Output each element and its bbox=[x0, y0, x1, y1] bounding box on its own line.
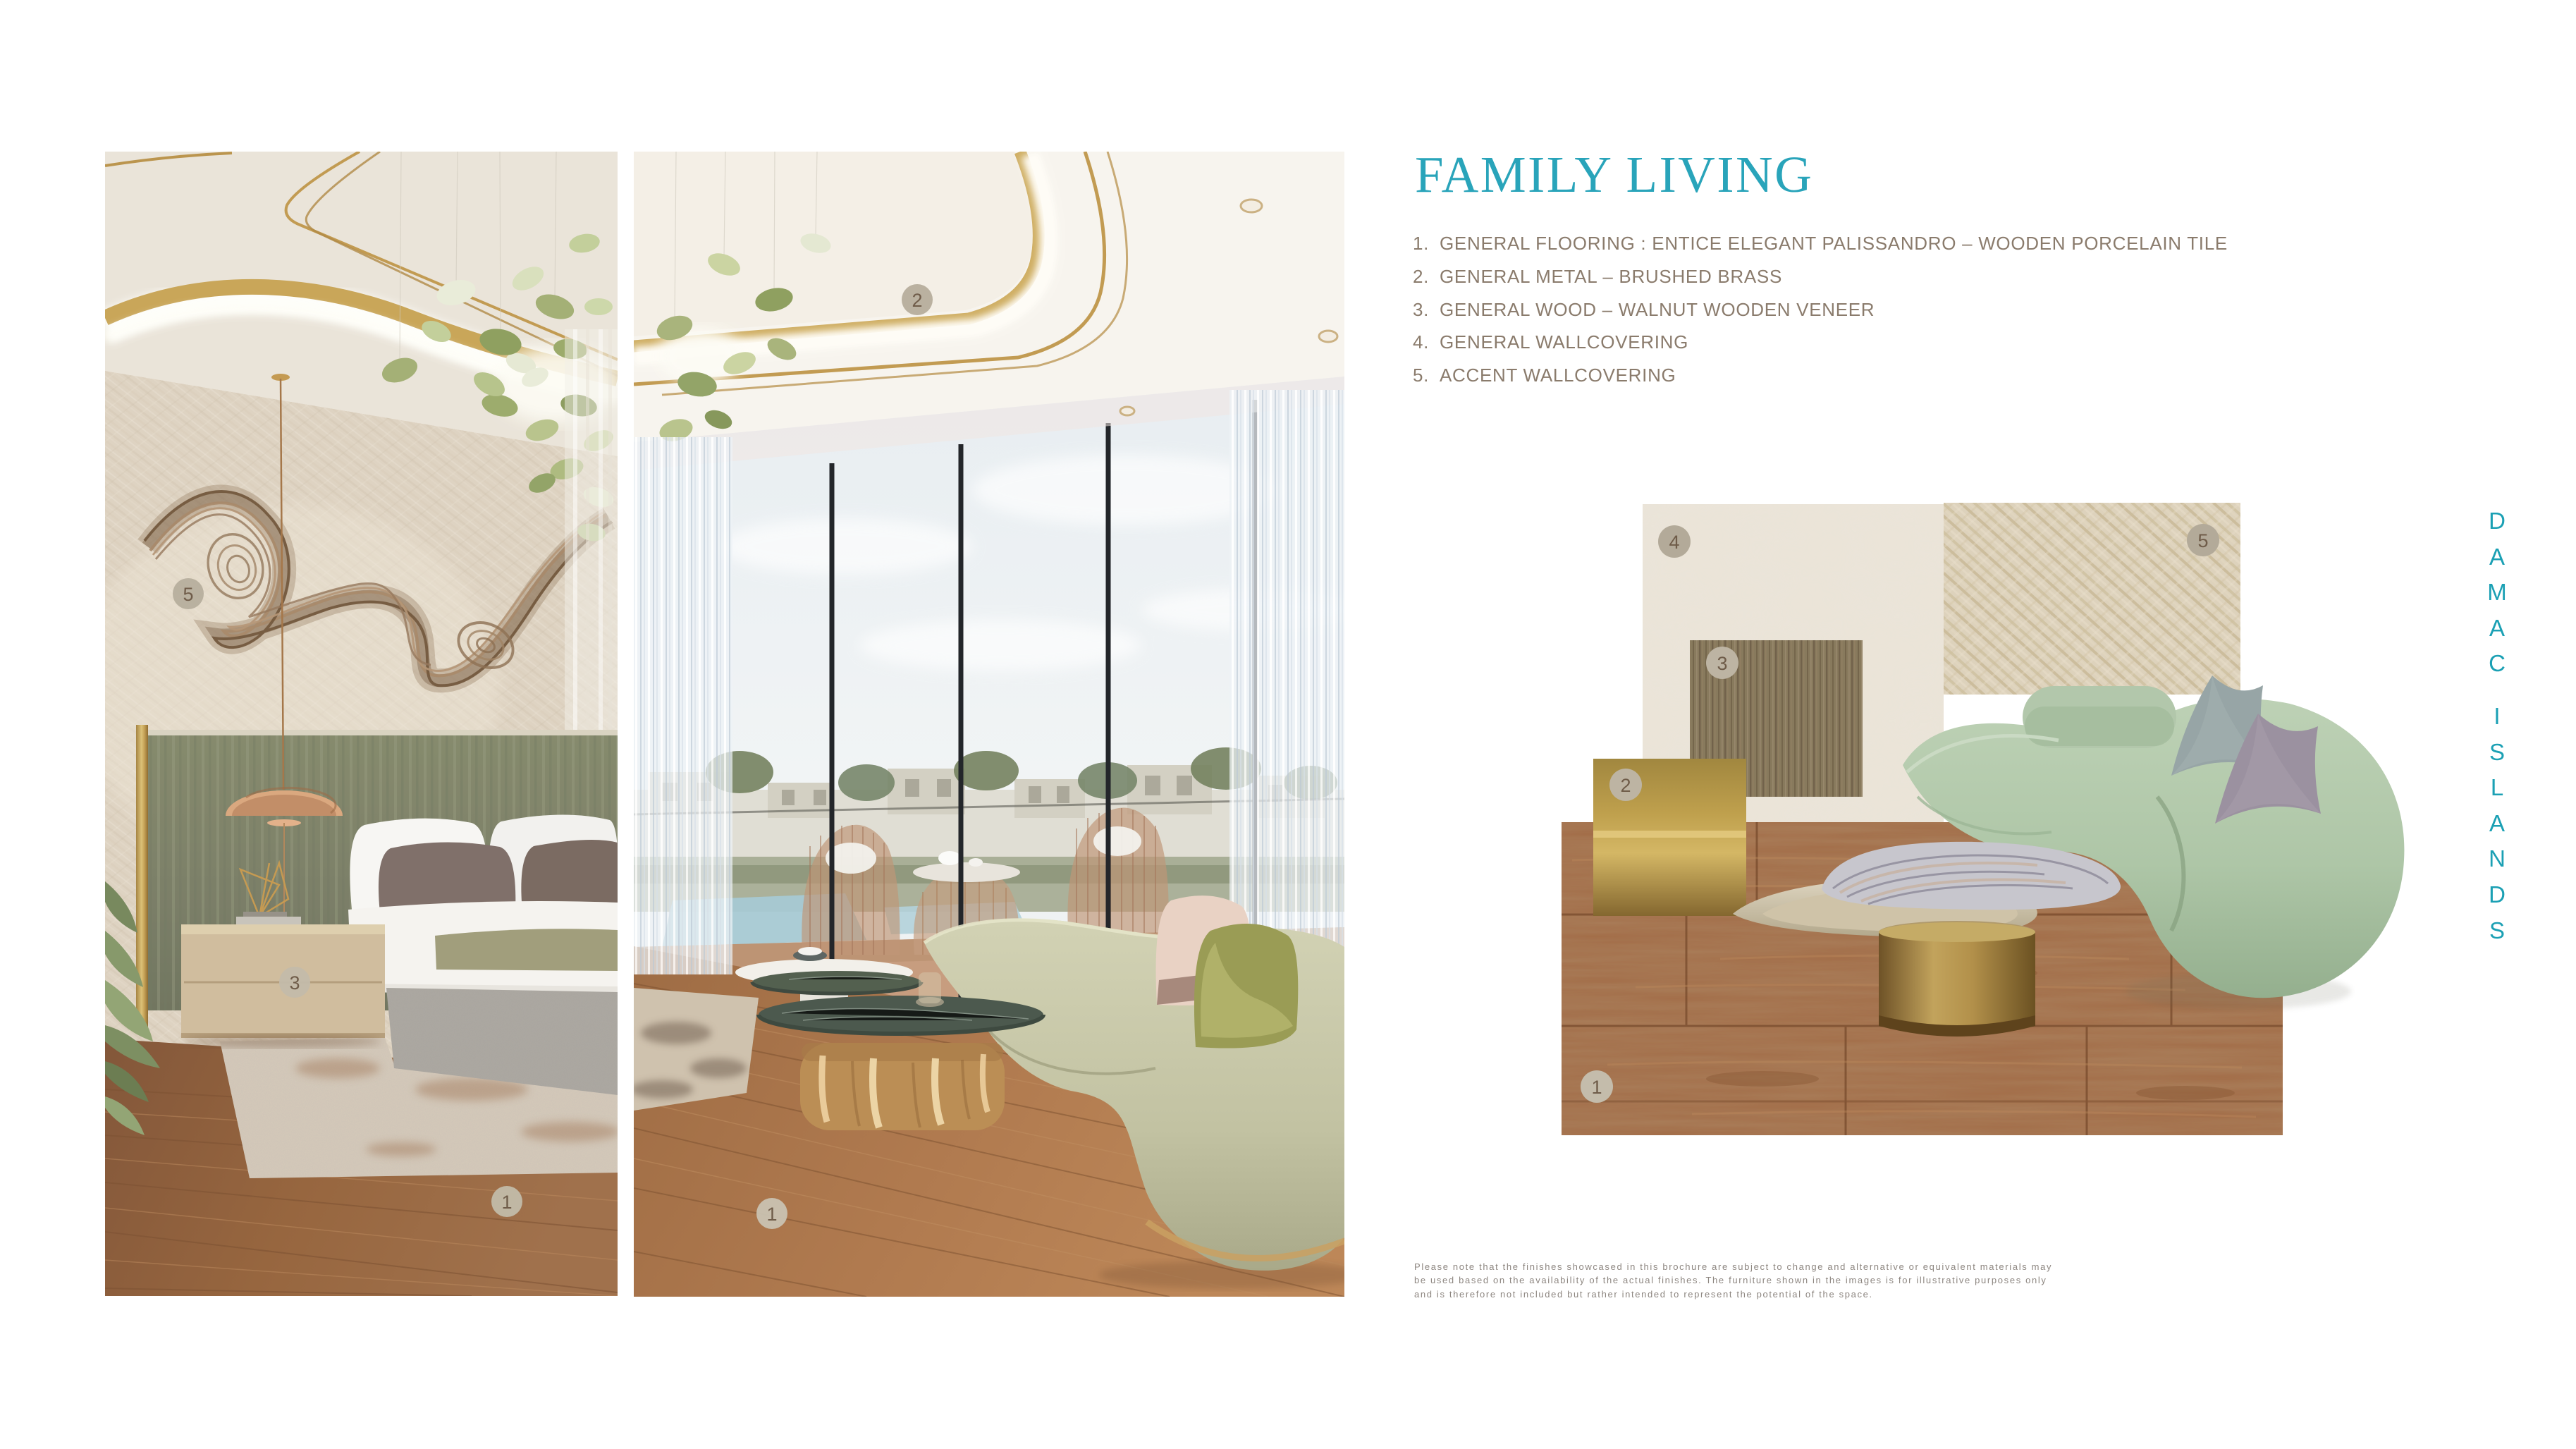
svg-text:5: 5 bbox=[183, 584, 193, 605]
svg-text:2: 2 bbox=[1620, 775, 1631, 796]
svg-text:3: 3 bbox=[289, 972, 300, 993]
svg-text:1: 1 bbox=[501, 1192, 512, 1213]
svg-text:5: 5 bbox=[2197, 530, 2208, 551]
svg-text:1: 1 bbox=[766, 1204, 777, 1225]
svg-text:3: 3 bbox=[1717, 653, 1727, 674]
svg-text:2: 2 bbox=[912, 290, 922, 311]
svg-text:4: 4 bbox=[1669, 532, 1679, 553]
svg-text:1: 1 bbox=[1591, 1077, 1602, 1098]
